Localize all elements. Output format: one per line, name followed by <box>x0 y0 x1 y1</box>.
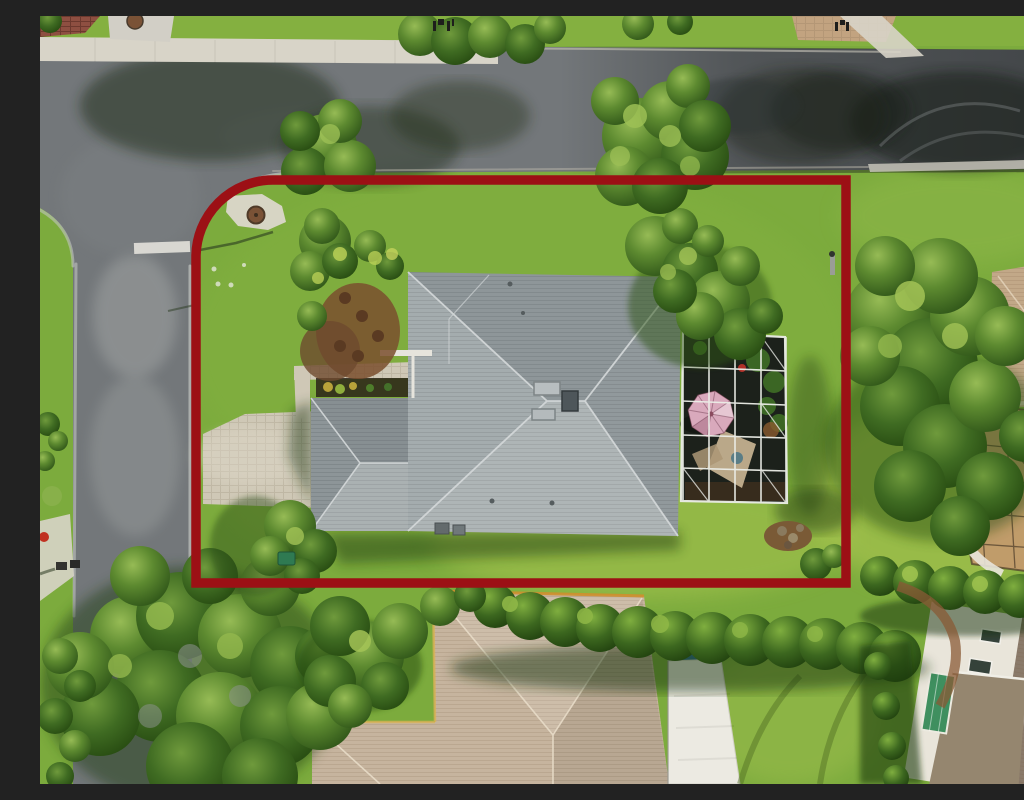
manhole-cover <box>127 16 143 29</box>
aerial-photo <box>40 16 1024 784</box>
pool-glimpse <box>731 452 743 464</box>
crosswalk-bar <box>134 241 190 254</box>
window <box>968 658 992 674</box>
roof-vent <box>562 391 578 411</box>
utility-box <box>278 552 295 565</box>
red-plant <box>738 364 746 372</box>
